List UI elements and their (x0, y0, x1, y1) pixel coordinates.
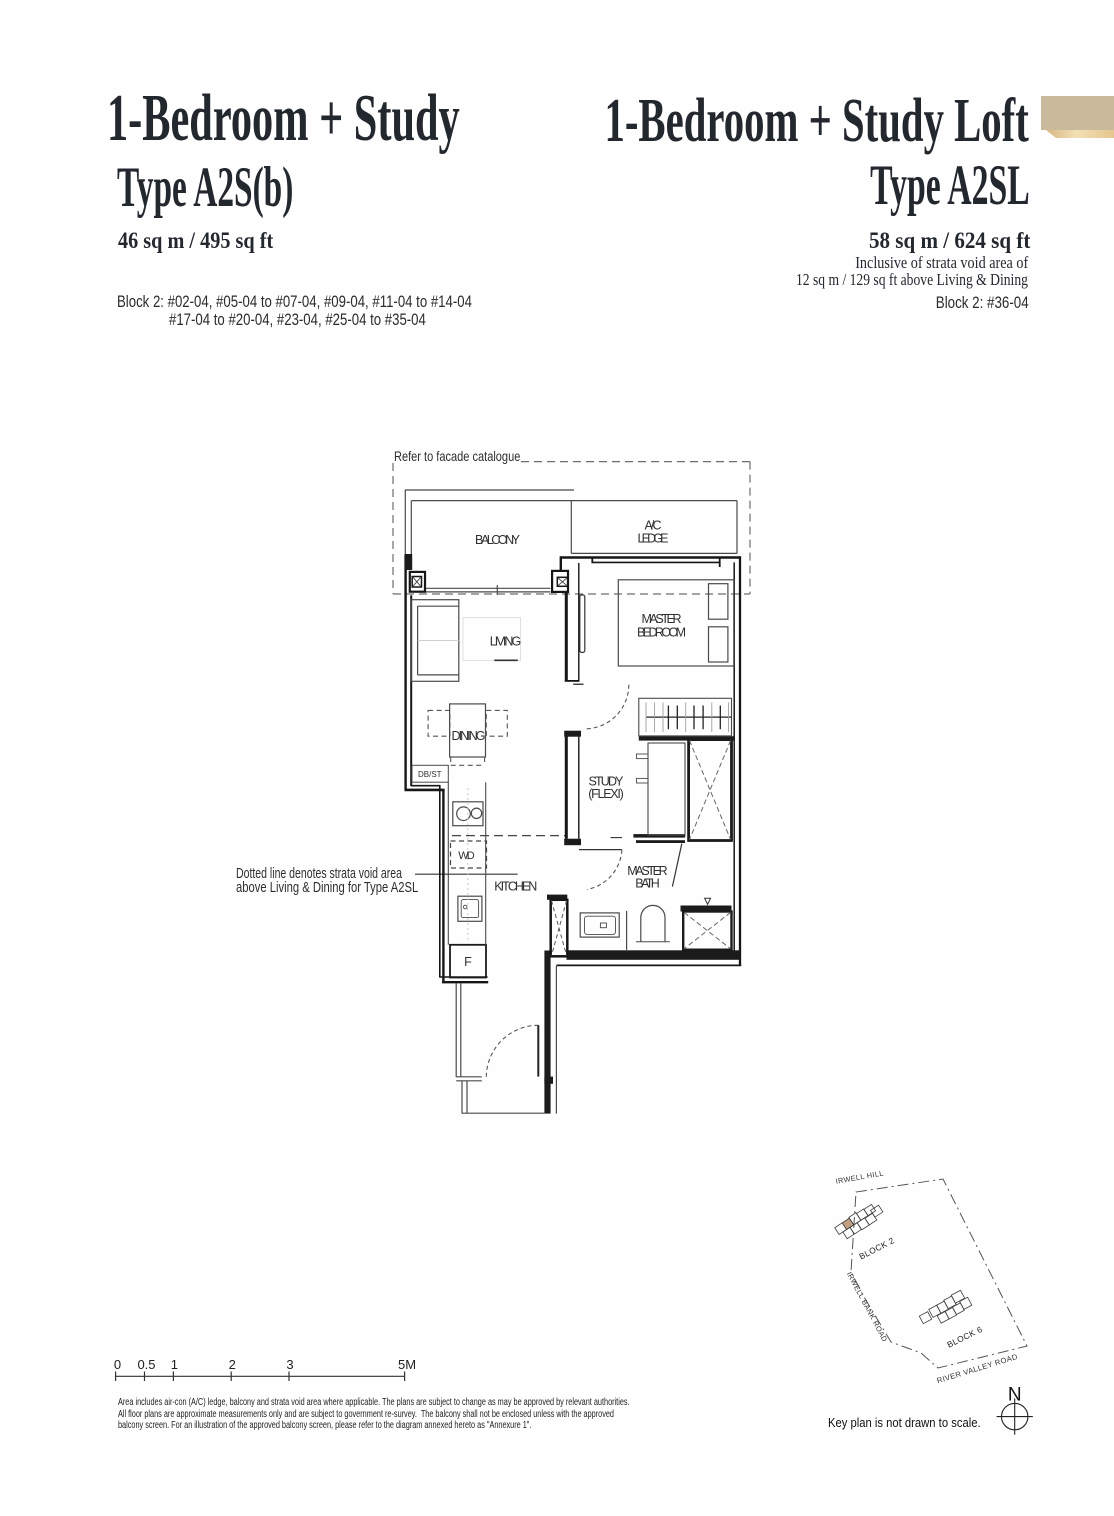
svg-text:3: 3 (286, 1357, 293, 1372)
svg-text:A/C: A/C (645, 519, 662, 533)
svg-text:DB/ST: DB/ST (418, 770, 442, 779)
svg-text:0: 0 (114, 1357, 121, 1372)
svg-text:N: N (1008, 1385, 1022, 1406)
svg-text:BATH: BATH (635, 877, 660, 891)
svg-text:F: F (464, 955, 472, 969)
svg-text:BEDROOM: BEDROOM (637, 625, 686, 639)
svg-text:2: 2 (229, 1357, 236, 1372)
svg-text:WD: WD (458, 850, 475, 862)
svg-text:IRWELL HILL: IRWELL HILL (835, 1168, 884, 1185)
svg-text:LIVING: LIVING (490, 635, 522, 649)
svg-text:5M: 5M (398, 1357, 416, 1372)
svg-text:BLOCK 2: BLOCK 2 (857, 1235, 896, 1261)
svg-text:1: 1 (171, 1357, 178, 1372)
svg-text:0.5: 0.5 (137, 1357, 155, 1372)
svg-text:DINING: DINING (452, 729, 486, 743)
svg-text:(FLEXI): (FLEXI) (588, 787, 624, 801)
svg-text:IRWELL BANK ROAD: IRWELL BANK ROAD (845, 1270, 890, 1343)
svg-text:MASTER: MASTER (642, 612, 682, 626)
svg-text:BALCONY: BALCONY (475, 533, 521, 547)
svg-text:KITCHEN: KITCHEN (494, 880, 537, 894)
svg-text:BLOCK 6: BLOCK 6 (945, 1324, 984, 1350)
svg-text:LEDGE: LEDGE (638, 532, 669, 546)
svg-text:RIVER VALLEY ROAD: RIVER VALLEY ROAD (936, 1352, 1019, 1385)
